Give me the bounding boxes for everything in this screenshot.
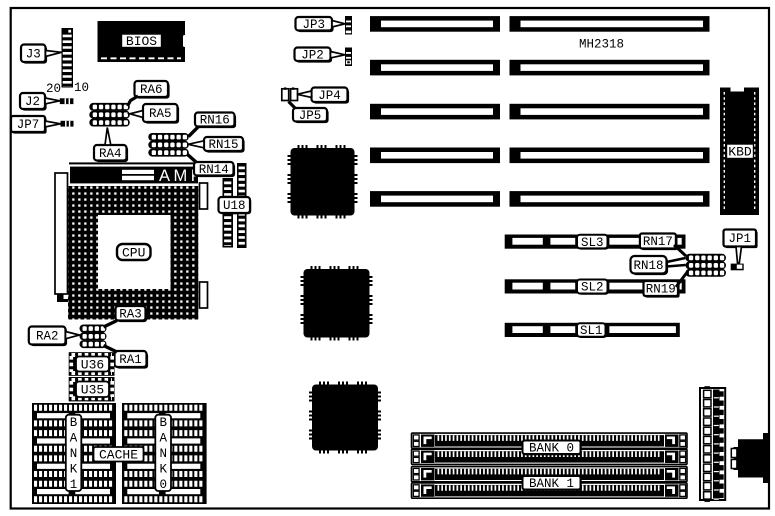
svg-text:U35: U35 — [81, 383, 104, 398]
svg-text:BANK 0: BANK 0 — [529, 441, 574, 455]
svg-text:RN15: RN15 — [208, 138, 238, 152]
svg-text:RA2: RA2 — [36, 330, 59, 344]
svg-text:MH2318: MH2318 — [579, 38, 624, 52]
svg-text:A: A — [159, 432, 167, 446]
svg-text:J3: J3 — [26, 48, 41, 62]
svg-text:1: 1 — [70, 478, 78, 492]
svg-text:RA6: RA6 — [140, 83, 163, 97]
svg-text:RN17: RN17 — [643, 235, 673, 249]
svg-text:JP2: JP2 — [301, 49, 324, 63]
svg-text:J2: J2 — [25, 95, 40, 109]
svg-text:CPU: CPU — [122, 245, 145, 260]
svg-text:SL2: SL2 — [581, 281, 604, 295]
svg-text:JP3: JP3 — [303, 18, 326, 32]
svg-text:KBD: KBD — [728, 145, 752, 160]
svg-text:JP1: JP1 — [729, 232, 752, 246]
svg-text:RN19: RN19 — [646, 283, 676, 297]
svg-text:B: B — [70, 416, 78, 430]
svg-text:RN16: RN16 — [200, 114, 230, 128]
svg-text:N: N — [159, 447, 167, 461]
svg-text:CACHE: CACHE — [99, 448, 138, 463]
svg-text:U36: U36 — [81, 357, 104, 372]
svg-text:0: 0 — [159, 478, 167, 492]
svg-text:U18: U18 — [223, 199, 246, 213]
svg-text:JP7: JP7 — [17, 118, 40, 132]
svg-text:BIOS: BIOS — [126, 34, 157, 49]
svg-text:SL1: SL1 — [580, 324, 603, 338]
svg-text:B: B — [159, 416, 167, 430]
svg-text:RN18: RN18 — [633, 259, 663, 273]
svg-text:K: K — [70, 463, 78, 477]
svg-text:RN14: RN14 — [199, 163, 229, 177]
svg-text:K: K — [159, 463, 167, 477]
svg-text:N: N — [70, 447, 78, 461]
svg-text:RA5: RA5 — [149, 107, 172, 121]
svg-text:SL3: SL3 — [581, 236, 604, 250]
svg-text:10: 10 — [74, 81, 89, 95]
svg-text:20: 20 — [46, 82, 61, 96]
svg-text:JP5: JP5 — [299, 109, 322, 123]
svg-text:JP4: JP4 — [318, 89, 341, 103]
svg-text:A: A — [70, 432, 78, 446]
svg-text:RA3: RA3 — [119, 307, 142, 321]
svg-text:RA1: RA1 — [119, 353, 142, 367]
svg-text:BANK 1: BANK 1 — [529, 477, 574, 491]
svg-text:RA4: RA4 — [99, 147, 122, 161]
